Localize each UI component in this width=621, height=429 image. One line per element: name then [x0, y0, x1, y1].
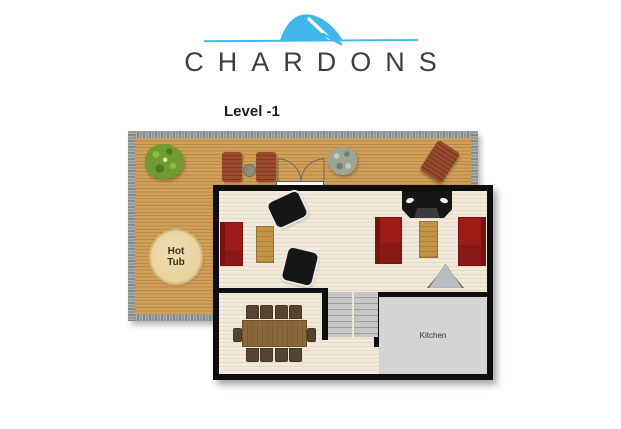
dining-chair: [275, 305, 288, 319]
dining-stool: [307, 328, 316, 342]
dining-chair: [246, 348, 259, 362]
kitchen: Kitchen: [379, 297, 487, 374]
red-sofa: [375, 217, 402, 264]
hot-tub-label: Hot Tub: [162, 246, 190, 269]
red-sofa: [458, 217, 486, 266]
deck-chair: [256, 152, 276, 182]
dining-chair: [260, 305, 273, 319]
stair-flight: [354, 292, 378, 337]
black-armchair: [281, 247, 318, 286]
tv-unit: [402, 191, 452, 218]
staircase: [328, 292, 378, 337]
mountain-icon: [196, 3, 426, 48]
hot-tub: Hot Tub: [151, 231, 201, 283]
coffee-table: [419, 221, 438, 258]
dining-chair: [260, 348, 273, 362]
bush-plant-icon: [145, 144, 184, 179]
tv-screen: [414, 208, 440, 218]
dining-chair: [289, 348, 302, 362]
dining-chair: [289, 305, 302, 319]
stair-flight: [328, 292, 352, 337]
deck-round-table: [243, 164, 256, 177]
brand-logo: CHARDONS: [0, 3, 621, 93]
dining-table: [242, 320, 307, 347]
french-doors-swing-icon: [277, 158, 325, 182]
speaker-icon: [405, 197, 414, 204]
interior: Kitchen: [213, 185, 493, 380]
red-sofa: [220, 222, 243, 266]
side-table: [256, 226, 274, 263]
kitchen-label: Kitchen: [420, 331, 447, 340]
black-armchair: [267, 190, 308, 228]
speaker-icon: [439, 197, 448, 204]
fireplace-icon: [427, 264, 464, 288]
brand-name: CHARDONS: [0, 47, 621, 78]
deck-edge-top: [128, 131, 478, 138]
dining-chair: [275, 348, 288, 362]
deck-chair: [222, 152, 242, 182]
gray-shrub-icon: [328, 147, 357, 175]
dining-chair: [246, 305, 259, 319]
deck-edge-left: [128, 131, 135, 321]
dining-wall-horizontal: [219, 288, 328, 293]
floorplan-page: CHARDONS Level -1 Hot Tub: [0, 0, 621, 429]
dining-stool: [233, 328, 242, 342]
level-label: Level -1: [224, 103, 280, 120]
